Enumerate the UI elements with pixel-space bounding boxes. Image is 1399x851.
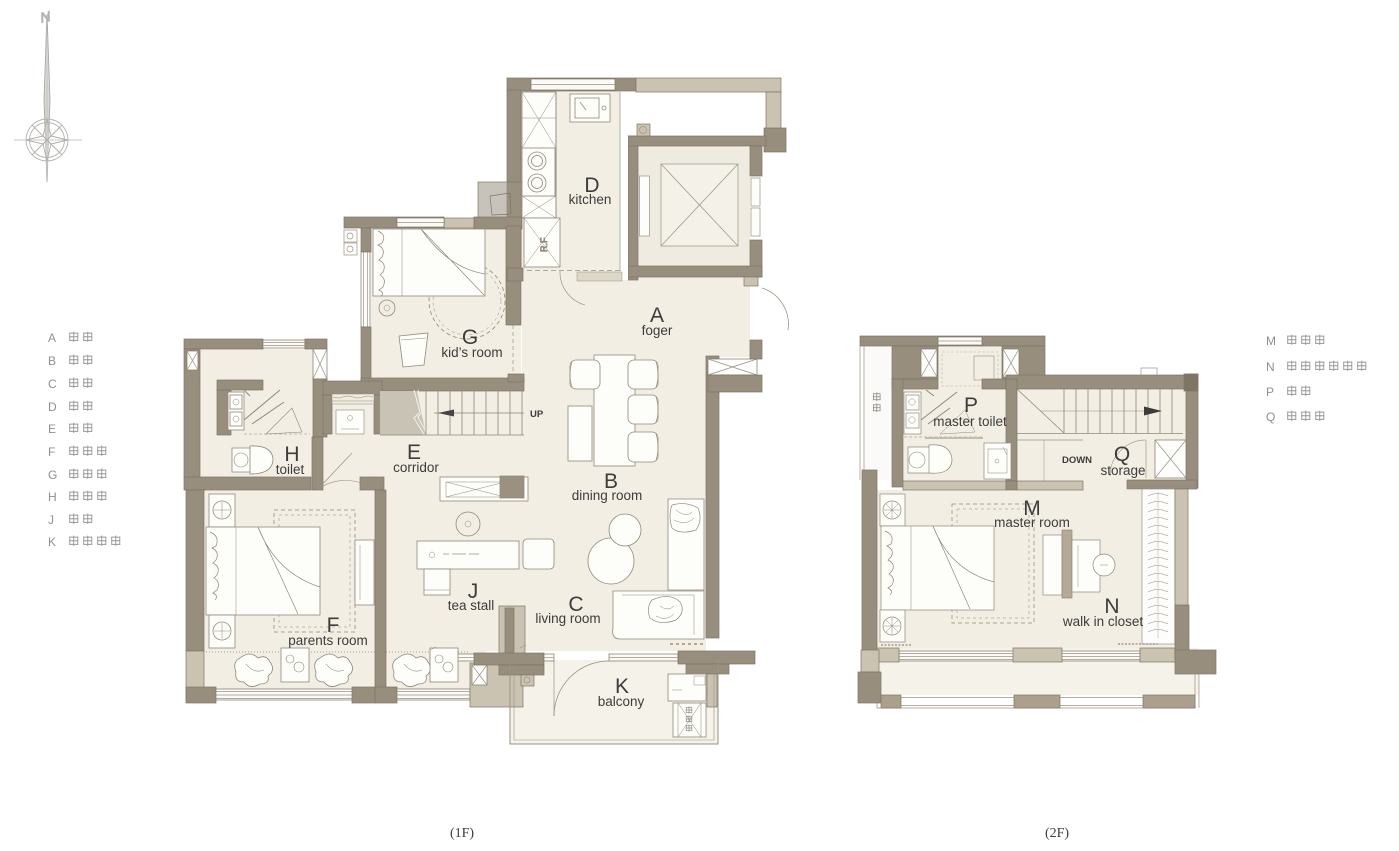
svg-text:D: D (48, 400, 57, 414)
svg-text:G: G (48, 468, 57, 482)
svg-text:N: N (1266, 360, 1275, 374)
svg-text:F: F (48, 445, 55, 459)
svg-text:kitchen: kitchen (569, 192, 612, 207)
svg-text:N: N (39, 8, 53, 26)
svg-text:tea stall: tea stall (448, 598, 495, 613)
svg-text:kid’s room: kid’s room (441, 345, 502, 360)
svg-text:M: M (1266, 334, 1276, 348)
svg-text:foger: foger (642, 323, 673, 338)
svg-text:B: B (48, 354, 56, 368)
svg-text:master toilet: master toilet (933, 414, 1007, 429)
svg-text:(2F): (2F) (1045, 826, 1069, 841)
svg-text:balcony: balcony (598, 694, 645, 709)
svg-text:A: A (48, 331, 56, 345)
svg-text:(1F): (1F) (450, 826, 474, 841)
svg-text:DOWN: DOWN (1062, 455, 1092, 466)
svg-text:dining room: dining room (572, 488, 643, 503)
svg-text:corridor: corridor (393, 460, 439, 475)
svg-text:K: K (48, 535, 56, 549)
svg-text:parents room: parents room (288, 633, 368, 648)
svg-text:P: P (1266, 385, 1274, 399)
svg-text:living room: living room (535, 611, 600, 626)
svg-text:C: C (48, 377, 57, 391)
svg-text:toilet: toilet (276, 462, 305, 477)
svg-text:J: J (48, 513, 54, 527)
svg-text:walk in closet: walk in closet (1062, 614, 1144, 629)
svg-text:master room: master room (994, 515, 1070, 530)
svg-text:H: H (48, 490, 57, 504)
svg-text:Q: Q (1266, 410, 1275, 424)
svg-text:UP: UP (530, 409, 544, 420)
svg-text:R.F: R.F (539, 237, 549, 252)
svg-text:storage: storage (1100, 463, 1145, 478)
svg-text:E: E (48, 422, 56, 436)
